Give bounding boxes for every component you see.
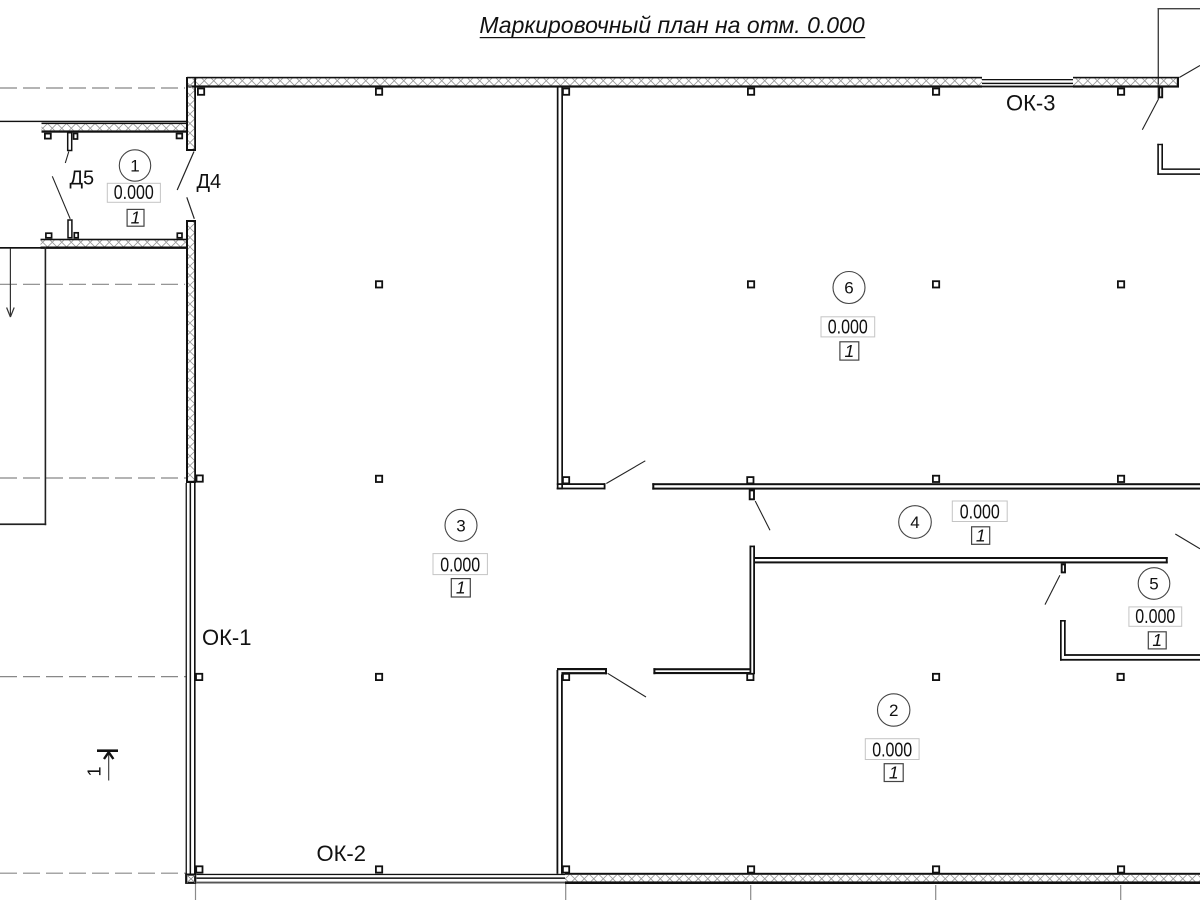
svg-text:6: 6	[844, 279, 853, 298]
svg-text:Д5: Д5	[70, 167, 95, 189]
svg-text:1: 1	[845, 341, 855, 361]
svg-text:ОК-2: ОК-2	[317, 841, 367, 866]
svg-text:5: 5	[1149, 575, 1158, 594]
svg-text:0.000: 0.000	[114, 182, 154, 204]
svg-text:0.000: 0.000	[828, 317, 868, 339]
svg-text:1: 1	[84, 766, 104, 776]
svg-text:ОК-3: ОК-3	[1006, 91, 1056, 116]
svg-text:2: 2	[889, 701, 898, 720]
svg-text:1: 1	[456, 578, 466, 598]
svg-text:4: 4	[910, 513, 919, 532]
svg-text:1: 1	[889, 762, 899, 782]
svg-text:Д4: Д4	[197, 171, 222, 193]
svg-text:0.000: 0.000	[440, 554, 480, 576]
svg-text:Маркировочный план на отм. 0.0: Маркировочный план на отм. 0.000	[479, 12, 864, 38]
svg-text:1: 1	[130, 157, 139, 176]
svg-text:0.000: 0.000	[1135, 606, 1175, 628]
svg-text:0.000: 0.000	[960, 501, 1000, 523]
svg-text:3: 3	[456, 517, 465, 536]
svg-text:1: 1	[976, 525, 986, 545]
svg-text:ОК-1: ОК-1	[202, 625, 252, 650]
svg-text:1: 1	[1152, 630, 1162, 650]
svg-text:1: 1	[131, 207, 141, 227]
svg-text:0.000: 0.000	[872, 739, 912, 761]
